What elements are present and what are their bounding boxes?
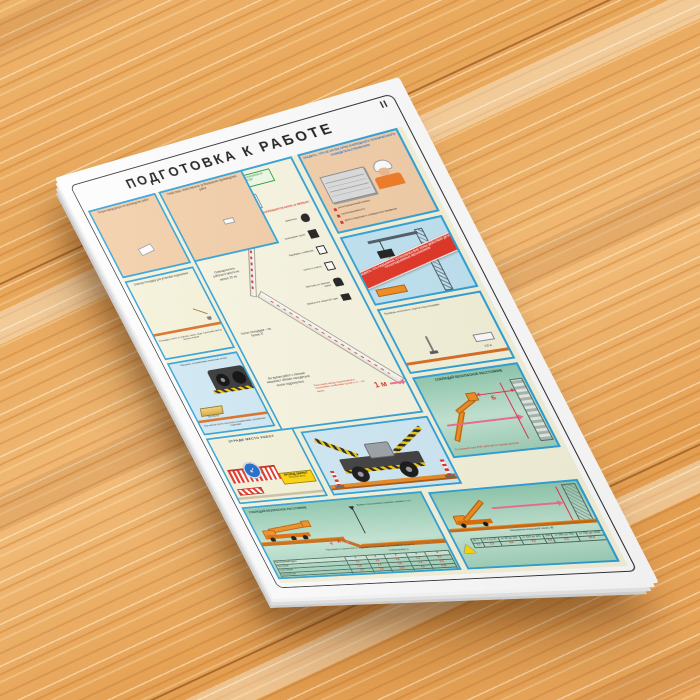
excavation-table: Ненасыпной грунт12345Песчаный1,53,04,05,… bbox=[273, 550, 462, 579]
warning-ribbon: УБЕДИСЬ, ЧТО ПОДЪЕМНИК УСТАНОВЛЕН ВНЕ ЗО… bbox=[351, 227, 473, 292]
ground-check-caption: Проверь плотность грунта под опорами bbox=[384, 302, 449, 317]
pl-arrow bbox=[491, 502, 559, 509]
slope-note: Уклон площадки – не более 3° bbox=[237, 326, 278, 340]
worker-figure bbox=[226, 205, 245, 228]
excavation-note: Бровка откоса выемки (траншеи, канавы и … bbox=[356, 499, 416, 507]
lift-boom-lower bbox=[455, 410, 465, 442]
worker-figure bbox=[197, 216, 216, 238]
tamper-foot bbox=[429, 350, 438, 354]
slope-mark-stem bbox=[353, 510, 366, 534]
animal-icon bbox=[299, 213, 311, 223]
crane-jib bbox=[367, 231, 418, 244]
load-item-label: барабаны с кабелем bbox=[282, 249, 314, 259]
load-item-label: плиты и стекло bbox=[290, 265, 322, 274]
cable-drum-icon bbox=[315, 245, 327, 255]
distance-text: Расстояние между подъемником и строениям… bbox=[313, 376, 372, 393]
slab-icon bbox=[324, 261, 336, 271]
building-dim-label: Б bbox=[490, 395, 497, 401]
gas-bottles-icon bbox=[332, 277, 344, 287]
crane-hook-line bbox=[379, 241, 384, 250]
shovel-blade bbox=[207, 316, 213, 320]
load-item-label: баллоны со сжатым газом bbox=[298, 281, 332, 293]
worker-figure bbox=[445, 315, 470, 343]
lattice-tower bbox=[561, 483, 595, 522]
inspection-bullet bbox=[340, 221, 344, 224]
ribbon-text: УБЕДИСЬ, ЧТО ПОДЪЕМНИК УСТАНОВЛЕН ВНЕ ЗО… bbox=[352, 228, 465, 283]
ground-line bbox=[330, 473, 462, 491]
outrigger-beam-right bbox=[393, 425, 423, 453]
boom-lower-section bbox=[257, 291, 404, 385]
outrigger-leg-right bbox=[440, 459, 452, 475]
crate-icon bbox=[307, 229, 319, 239]
detour-arrow-icon: ↙ bbox=[247, 466, 257, 475]
inspection-bullet bbox=[333, 208, 337, 211]
worker-figure bbox=[122, 237, 140, 258]
tower-column bbox=[509, 378, 554, 441]
inspector-vest bbox=[374, 172, 406, 190]
dim-line bbox=[477, 390, 515, 396]
distance-value: 1 м bbox=[373, 380, 389, 390]
depth-chip: 0,5 м bbox=[472, 332, 495, 343]
open-container-icon bbox=[340, 293, 352, 301]
inspection-bullet bbox=[337, 214, 341, 217]
permit-caption: Получи наряд-допуск на производство рабо… bbox=[92, 197, 155, 216]
excavation-title: СОБЛЮДАЙ БЕЗОПАСНОЕ РАССТОЯНИЕ bbox=[248, 505, 321, 515]
panel-power-lines: Напряжение воздушной линии, кВ До 1от 1 … bbox=[428, 479, 620, 570]
distance-arrow-head bbox=[400, 379, 407, 385]
outrigger-leg-left bbox=[330, 471, 341, 487]
observer-figure bbox=[421, 438, 442, 460]
load-item-label: жидкости в открытой таре bbox=[306, 297, 339, 306]
photo-scene: II ПОДГОТОВКА К РАБОТЕ ПРОВЕРЬ РАБОТУ МЕ… bbox=[0, 0, 700, 700]
building-note: В охранной зоне ЛЭП работай по наряду-до… bbox=[455, 440, 537, 452]
closed-sign: ПРОХОД ЗАКРЫТ ОПАСНАЯ ЗОНА bbox=[278, 470, 316, 485]
lift-silhouette-base bbox=[375, 284, 408, 297]
depth-label: 0,5 м bbox=[484, 343, 493, 348]
fence-title: ОГРАДИ МЕСТО РАБОТ bbox=[211, 432, 293, 446]
operator-rule: Во время работ с люльки машинист обязан … bbox=[262, 370, 316, 388]
worker-figure bbox=[152, 305, 172, 329]
illumination-note: Освещенность рабочего места не менее 20 … bbox=[207, 265, 246, 283]
panel-excavation-distance: СОБЛЮДАЙ БЕЗОПАСНОЕ РАССТОЯНИЕ bbox=[241, 491, 461, 579]
dim-arrow-left bbox=[328, 541, 333, 545]
dim-arrow-left bbox=[476, 393, 481, 397]
plate-lines bbox=[324, 170, 373, 201]
